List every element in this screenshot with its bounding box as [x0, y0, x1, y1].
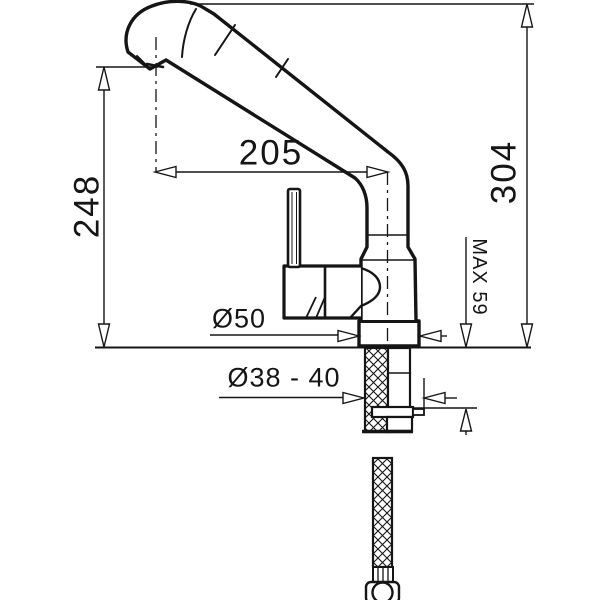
mounting-plate-tab	[413, 409, 424, 415]
supply-hose	[366, 458, 399, 600]
dim-label-total-height: 304	[487, 140, 522, 204]
dim-label-max-deck-thickness: MAX 59	[469, 238, 489, 315]
mounting-plate	[372, 407, 413, 417]
drawing-linework	[0, 0, 600, 600]
faucet-technical-drawing: 205 248 304 MAX 59 Ø50 Ø38 - 40	[0, 0, 600, 600]
braided-hose-lower	[373, 458, 392, 567]
dim-label-hole-diameter: Ø38 - 40	[227, 365, 340, 392]
dim-label-spout-reach: 205	[239, 136, 303, 171]
mounting-assembly	[362, 348, 424, 432]
dim-label-height-to-spout: 248	[70, 174, 105, 238]
dim-label-base-diameter: Ø50	[212, 306, 266, 333]
mounting-nut	[387, 417, 412, 431]
braided-hose-upper	[365, 348, 388, 432]
